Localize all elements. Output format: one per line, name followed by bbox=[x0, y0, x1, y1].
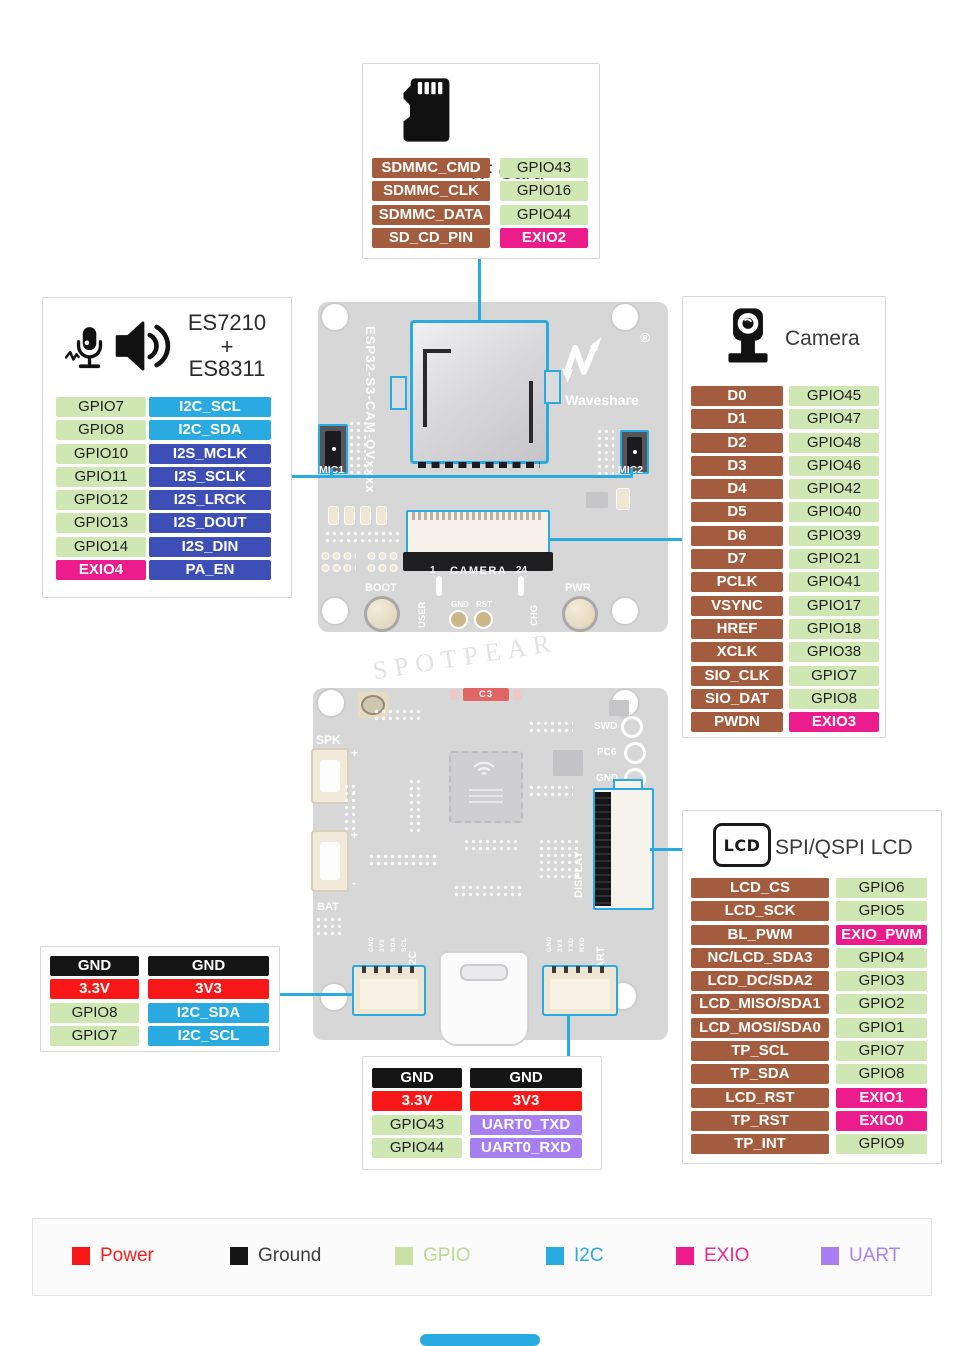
component bbox=[513, 689, 522, 700]
boot-button-label: BOOT bbox=[365, 583, 397, 594]
pin-cell-left: LCD_MISO/SDA1 bbox=[691, 994, 829, 1014]
legend: PowerGroundGPIOI2CEXIOUART bbox=[32, 1218, 932, 1296]
pin-cell-left: D2 bbox=[691, 433, 783, 453]
pin-cell-left: EXIO4 bbox=[56, 560, 146, 580]
pin-row: SDMMC_CMDGPIO43 bbox=[372, 158, 588, 178]
minus-mark: - bbox=[352, 876, 356, 890]
pin-cell-right: I2S_DOUT bbox=[149, 513, 271, 533]
lcd-panel: LCD SPI/QSPI LCD LCD_CSGPIO6LCD_SCKGPIO5… bbox=[682, 810, 942, 1164]
pin-cell-right: GPIO2 bbox=[836, 994, 927, 1014]
pin-cell-left: GPIO12 bbox=[56, 490, 146, 510]
pin-cell-right: I2S_MCLK bbox=[149, 444, 271, 464]
camera-panel: Camera D0GPIO45D1GPIO47D2GPIO48D3GPIO46D… bbox=[682, 296, 886, 738]
speaker-icon bbox=[113, 316, 173, 376]
pin-cell-right: UART0_RXD bbox=[470, 1138, 582, 1158]
pin-cell-right: I2S_DIN bbox=[149, 537, 271, 557]
legend-item-gpio: GPIO bbox=[395, 1245, 471, 1267]
display-callout-line bbox=[650, 848, 682, 851]
uart-pin-table: GNDGND3.3V3V3GPIO43UART0_TXDGPIO44UART0_… bbox=[372, 1068, 582, 1158]
tf-card-pin-table: SDMMC_CMDGPIO43SDMMC_CLKGPIO16SDMMC_DATA… bbox=[372, 158, 588, 248]
pin-cell-left: PWDN bbox=[691, 712, 783, 732]
pin-cell-right: GND bbox=[470, 1068, 582, 1088]
silkscreen-pattern bbox=[408, 778, 422, 833]
pin-row: D0GPIO45 bbox=[691, 386, 879, 406]
slot-spring bbox=[423, 349, 451, 353]
boot-button bbox=[364, 596, 400, 632]
silkscreen-pattern bbox=[596, 428, 614, 476]
pin-cell-left: TP_INT bbox=[691, 1134, 829, 1154]
watermark: SPOTPEAR bbox=[371, 628, 559, 687]
component bbox=[328, 506, 339, 525]
pin-cell-left: D3 bbox=[691, 456, 783, 476]
silkscreen-pattern bbox=[528, 720, 573, 735]
legend-label: UART bbox=[849, 1245, 900, 1267]
legend-swatch bbox=[676, 1247, 694, 1265]
pin-row: BL_PWMEXIO_PWM bbox=[691, 925, 927, 945]
lcd-pin-table: LCD_CSGPIO6LCD_SCKGPIO5BL_PWMEXIO_PWMNC/… bbox=[691, 878, 927, 1154]
pin-row: GPIO11I2S_SCLK bbox=[56, 467, 271, 487]
legend-swatch bbox=[72, 1247, 90, 1265]
pin-cell-left: D7 bbox=[691, 549, 783, 569]
silkscreen-pin-label: 3V3 bbox=[557, 926, 564, 952]
silkscreen-pin-label: GND bbox=[368, 926, 375, 952]
pin-row: SIO_CLKGPIO7 bbox=[691, 666, 879, 686]
silkscreen-pin-label: TXD bbox=[568, 926, 575, 952]
pin-row: SDMMC_DATAGPIO44 bbox=[372, 205, 588, 225]
pin-cell-left: TP_RST bbox=[691, 1111, 829, 1131]
display-ffc-connector bbox=[593, 788, 654, 910]
pin-cell-left: GPIO11 bbox=[56, 467, 146, 487]
legend-label: EXIO bbox=[704, 1245, 749, 1267]
pin-cell-left: GPIO43 bbox=[372, 1115, 462, 1135]
jumper-pads bbox=[320, 550, 356, 574]
pin-cell-right: UART0_TXD bbox=[470, 1115, 582, 1135]
pin-row: TP_SCLGPIO7 bbox=[691, 1041, 927, 1061]
usb-c-connector bbox=[439, 951, 529, 1046]
pin-cell-left: GND bbox=[372, 1068, 462, 1088]
pin-cell-left: TP_SDA bbox=[691, 1064, 829, 1084]
legend-label: Ground bbox=[258, 1245, 321, 1267]
pin-cell-left: D5 bbox=[691, 502, 783, 522]
pin-cell-right: GPIO9 bbox=[836, 1134, 927, 1154]
pin-cell-right: EXIO3 bbox=[789, 712, 879, 732]
camera-silk-label: CAMERA bbox=[450, 566, 507, 577]
waveshare-logo: ® Waveshare bbox=[554, 336, 650, 428]
pin-cell-left: 3.3V bbox=[372, 1091, 462, 1111]
i2c-connector bbox=[352, 965, 426, 1016]
rst-pad-label: RST bbox=[476, 601, 492, 609]
pin-cell-left: GND bbox=[50, 956, 139, 976]
swd-pad-label: SWD bbox=[594, 722, 617, 732]
pin-cell-right: GPIO17 bbox=[789, 596, 879, 616]
pin-row: GNDGND bbox=[372, 1068, 582, 1088]
pin-cell-right: GPIO48 bbox=[789, 433, 879, 453]
legend-item-uart: UART bbox=[821, 1245, 900, 1267]
pin-cell-right: EXIO0 bbox=[836, 1111, 927, 1131]
pwr-button-label: PWR bbox=[565, 583, 591, 594]
legend-swatch bbox=[546, 1247, 564, 1265]
pin-cell-right: GPIO43 bbox=[500, 158, 588, 178]
legend-item-exio: EXIO bbox=[676, 1245, 749, 1267]
component bbox=[553, 750, 583, 776]
pin-cell-right: GPIO40 bbox=[789, 502, 879, 522]
pin-cell-left: SDMMC_CMD bbox=[372, 158, 490, 178]
audio-title-line1: ES7210 bbox=[171, 310, 283, 336]
jumper-pads bbox=[366, 550, 400, 574]
pin-cell-left: LCD_RST bbox=[691, 1088, 829, 1108]
microphone-icon bbox=[65, 316, 113, 380]
component bbox=[360, 506, 371, 525]
pin-row: GNDGND bbox=[50, 956, 269, 976]
pin-cell-right: GPIO46 bbox=[789, 456, 879, 476]
pin-cell-left: D6 bbox=[691, 526, 783, 546]
pin-row: LCD_CSGPIO6 bbox=[691, 878, 927, 898]
pwr-button bbox=[562, 596, 598, 632]
pin-row: GPIO8I2C_SDA bbox=[50, 1003, 269, 1023]
lcd-icon: LCD bbox=[713, 823, 771, 867]
pin-cell-left: GPIO8 bbox=[56, 420, 146, 440]
pin-row: LCD_DC/SDA2GPIO3 bbox=[691, 971, 927, 991]
pin-cell-right: I2C_SCL bbox=[149, 397, 271, 417]
pin-row: LCD_RSTEXIO1 bbox=[691, 1088, 927, 1108]
tf-callout-line bbox=[478, 257, 481, 321]
user-button-label: USER bbox=[418, 586, 428, 628]
pin-cell-left: GPIO7 bbox=[50, 1026, 139, 1046]
uart-pin-labels: GND3V3TXDRXD bbox=[546, 926, 586, 952]
silkscreen-pin-label: 3V3 bbox=[379, 926, 386, 952]
legend-item-i2c: I2C bbox=[546, 1245, 604, 1267]
legend-swatch bbox=[395, 1247, 413, 1265]
pin-cell-left: XCLK bbox=[691, 642, 783, 662]
pin-row: D5GPIO40 bbox=[691, 502, 879, 522]
camera-ffc-connector bbox=[406, 510, 550, 570]
component bbox=[586, 492, 608, 508]
audio-callout-stub bbox=[630, 468, 633, 476]
pin-row: D1GPIO47 bbox=[691, 409, 879, 429]
i2c-header-panel: GNDGND3.3V3V3GPIO8I2C_SDAGPIO7I2C_SCL bbox=[40, 946, 280, 1052]
pin-cell-right: GPIO8 bbox=[836, 1064, 927, 1084]
silkscreen-pin-label: SDA bbox=[390, 926, 397, 952]
pc6-pad bbox=[624, 742, 646, 764]
connector-pins bbox=[412, 512, 544, 520]
i2c-callout-line bbox=[278, 993, 354, 996]
slot-pins bbox=[418, 462, 540, 468]
silkscreen-pin-label: GND bbox=[546, 926, 553, 952]
silkscreen-pattern bbox=[463, 838, 518, 854]
pin-cell-left: SDMMC_DATA bbox=[372, 205, 490, 225]
component bbox=[344, 506, 355, 525]
mounting-hole bbox=[321, 984, 347, 1010]
silkscreen-pattern bbox=[324, 530, 400, 544]
pin-cell-left: GPIO44 bbox=[372, 1138, 462, 1158]
pin-cell-left: GPIO14 bbox=[56, 537, 146, 557]
mounting-hole bbox=[318, 690, 344, 716]
pin-row: GPIO8I2C_SDA bbox=[56, 420, 271, 440]
lcd-title: SPI/QSPI LCD bbox=[775, 836, 913, 860]
plus-mark: + bbox=[351, 746, 358, 760]
mounting-hole bbox=[322, 598, 348, 624]
c3-component: C3 bbox=[463, 688, 509, 701]
pin-row: TP_RSTEXIO0 bbox=[691, 1111, 927, 1131]
pin-cell-right: GPIO3 bbox=[836, 971, 927, 991]
legend-label: Power bbox=[100, 1245, 154, 1267]
uart-connector bbox=[542, 965, 618, 1016]
pin-row: GPIO13I2S_DOUT bbox=[56, 513, 271, 533]
pin-row: D2GPIO48 bbox=[691, 433, 879, 453]
pin-row: GPIO7I2C_SCL bbox=[56, 397, 271, 417]
waveshare-mark-icon bbox=[554, 336, 616, 386]
camera-callout-line bbox=[549, 538, 682, 541]
board-photo-top: ® Waveshare ESP32-S3-CAM-OVxxxx MIC1 MIC… bbox=[318, 302, 668, 632]
swd-pad bbox=[621, 716, 643, 738]
gnd-pad bbox=[449, 610, 468, 629]
pin-cell-right: GPIO38 bbox=[789, 642, 879, 662]
brand-label: Waveshare bbox=[554, 392, 650, 408]
legend-label: GPIO bbox=[423, 1245, 471, 1267]
pin-cell-left: LCD_DC/SDA2 bbox=[691, 971, 829, 991]
pin-cell-right: GPIO47 bbox=[789, 409, 879, 429]
i2c-silk-label: I2C bbox=[408, 940, 419, 968]
tf-card-panel: TF Card SDMMC_CMDGPIO43SDMMC_CLKGPIO16SD… bbox=[362, 63, 600, 259]
pin-row: GPIO10I2S_MCLK bbox=[56, 444, 271, 464]
pin-cell-right: GPIO44 bbox=[500, 205, 588, 225]
pin-cell-left: GPIO8 bbox=[50, 1003, 139, 1023]
i2c-pin-table: GNDGND3.3V3V3GPIO8I2C_SDAGPIO7I2C_SCL bbox=[50, 956, 269, 1046]
pin-cell-right: GPIO41 bbox=[789, 572, 879, 592]
pin-cell-right: GPIO39 bbox=[789, 526, 879, 546]
chip-marking bbox=[469, 801, 503, 803]
pin-row: D3GPIO46 bbox=[691, 456, 879, 476]
slot-spring bbox=[423, 349, 427, 427]
pin-cell-right: EXIO_PWM bbox=[836, 925, 927, 945]
silkscreen-slot bbox=[518, 576, 524, 596]
pin-cell-left: SIO_DAT bbox=[691, 689, 783, 709]
pin-cell-right: GPIO16 bbox=[500, 181, 588, 201]
pin-row: GPIO44UART0_RXD bbox=[372, 1138, 582, 1158]
board-photo-bottom: C3 SPK + - + - SWD PC6 GND bbox=[313, 688, 668, 1040]
pin-cell-left: GPIO13 bbox=[56, 513, 146, 533]
legend-swatch bbox=[230, 1247, 248, 1265]
pin-cell-left: 3.3V bbox=[50, 979, 139, 999]
pin1-label: 1 bbox=[430, 566, 436, 576]
bat-label: BAT bbox=[317, 902, 339, 913]
pin-row: 3.3V3V3 bbox=[372, 1091, 582, 1111]
audio-pin-table: GPIO7I2C_SCLGPIO8I2C_SDAGPIO10I2S_MCLKGP… bbox=[56, 397, 271, 580]
audio-title-line3: ES8311 bbox=[171, 356, 283, 382]
pin-cell-left: GPIO10 bbox=[56, 444, 146, 464]
silkscreen-pin-label: RXD bbox=[579, 926, 586, 952]
pin-row: LCD_MISO/SDA1GPIO2 bbox=[691, 994, 927, 1014]
pin-cell-right: EXIO1 bbox=[836, 1088, 927, 1108]
pin-cell-left: LCD_CS bbox=[691, 878, 829, 898]
slot-spring bbox=[529, 381, 533, 443]
bottom-indicator-bar bbox=[420, 1334, 540, 1346]
pin-row: GPIO14I2S_DIN bbox=[56, 537, 271, 557]
pin-row: LCD_MOSI/SDA0GPIO1 bbox=[691, 1018, 927, 1038]
pin-cell-right: I2C_SDA bbox=[148, 1003, 269, 1023]
pin-row: TP_SDAGPIO8 bbox=[691, 1064, 927, 1084]
spk-label: SPK bbox=[316, 734, 341, 746]
rst-pad bbox=[474, 610, 493, 629]
gnd-pad-label: GND bbox=[451, 601, 469, 609]
pin24-label: 24 bbox=[516, 566, 527, 576]
pc6-pad-label: PC6 bbox=[597, 748, 616, 758]
chip-marking bbox=[469, 795, 503, 797]
legend-label: I2C bbox=[574, 1245, 604, 1267]
component bbox=[376, 506, 387, 525]
chip-marking bbox=[469, 789, 503, 791]
pin-row: HREFGPIO18 bbox=[691, 619, 879, 639]
component bbox=[450, 689, 459, 700]
registered-mark: ® bbox=[640, 330, 650, 345]
pin-row: PWDNEXIO3 bbox=[691, 712, 879, 732]
pin-row: SDMMC_CLKGPIO16 bbox=[372, 181, 588, 201]
mounting-hole bbox=[612, 304, 638, 330]
chg-led-label: CHG bbox=[530, 586, 540, 626]
silkscreen-pattern bbox=[538, 838, 578, 878]
audio-callout-stub bbox=[330, 468, 333, 476]
pin-row: D6GPIO39 bbox=[691, 526, 879, 546]
pin-row: SD_CD_PINEXIO2 bbox=[372, 228, 588, 248]
pin-row: EXIO4PA_EN bbox=[56, 560, 271, 580]
pin-cell-right: GPIO1 bbox=[836, 1018, 927, 1038]
pin-cell-right: EXIO2 bbox=[500, 228, 588, 248]
pin-cell-left: BL_PWM bbox=[691, 925, 829, 945]
pin-cell-right: GPIO6 bbox=[836, 878, 927, 898]
legend-item-ground: Ground bbox=[230, 1245, 321, 1267]
camera-title: Camera bbox=[785, 327, 860, 351]
uart-callout-line bbox=[567, 1014, 570, 1057]
pin-cell-right: GND bbox=[148, 956, 269, 976]
pin-row: TP_INTGPIO9 bbox=[691, 1134, 927, 1154]
pin-row: NC/LCD_SDA3GPIO4 bbox=[691, 948, 927, 968]
pin-cell-left: LCD_SCK bbox=[691, 901, 829, 921]
silkscreen-pin-label: SCL bbox=[401, 926, 408, 952]
silkscreen-pattern bbox=[368, 853, 438, 867]
pin-cell-right: GPIO8 bbox=[789, 689, 879, 709]
pin-cell-left: SIO_CLK bbox=[691, 666, 783, 686]
legend-swatch bbox=[821, 1247, 839, 1265]
pin-cell-left: D1 bbox=[691, 409, 783, 429]
pin-cell-right: I2S_SCLK bbox=[149, 467, 271, 487]
pin-row: PCLKGPIO41 bbox=[691, 572, 879, 592]
uart-header-panel: GNDGND3.3V3V3GPIO43UART0_TXDGPIO44UART0_… bbox=[362, 1056, 602, 1170]
pin-cell-left: VSYNC bbox=[691, 596, 783, 616]
audio-callout-line bbox=[290, 475, 633, 478]
pin-cell-right: GPIO21 bbox=[789, 549, 879, 569]
pin-cell-right: GPIO4 bbox=[836, 948, 927, 968]
pin-cell-right: 3V3 bbox=[148, 979, 269, 999]
pin-row: SIO_DATGPIO8 bbox=[691, 689, 879, 709]
pin-cell-right: GPIO7 bbox=[789, 666, 879, 686]
pin-row: XCLKGPIO38 bbox=[691, 642, 879, 662]
pin-cell-left: D0 bbox=[691, 386, 783, 406]
slot-tab bbox=[390, 376, 407, 410]
mounting-hole bbox=[612, 598, 638, 624]
silkscreen-slot bbox=[436, 576, 442, 596]
pin-cell-right: I2C_SDA bbox=[149, 420, 271, 440]
pin-row: VSYNCGPIO17 bbox=[691, 596, 879, 616]
pin-row: D7GPIO21 bbox=[691, 549, 879, 569]
pin-cell-left: SD_CD_PIN bbox=[372, 228, 490, 248]
silkscreen-pattern bbox=[315, 916, 345, 938]
pin-cell-left: TP_SCL bbox=[691, 1041, 829, 1061]
pin-cell-right: GPIO7 bbox=[836, 1041, 927, 1061]
pin-cell-right: I2C_SCL bbox=[148, 1026, 269, 1046]
esp32-module bbox=[449, 751, 523, 823]
pin-cell-right: GPIO42 bbox=[789, 479, 879, 499]
audio-codec-panel: ES7210 + ES8311 GPIO7I2C_SCLGPIO8I2C_SDA… bbox=[42, 297, 292, 598]
pin-cell-right: 3V3 bbox=[470, 1091, 582, 1111]
legend-item-power: Power bbox=[72, 1245, 154, 1267]
tf-card-icon bbox=[399, 77, 451, 143]
pin-cell-left: GPIO7 bbox=[56, 397, 146, 417]
pin-cell-right: GPIO18 bbox=[789, 619, 879, 639]
silkscreen-pattern bbox=[528, 784, 573, 796]
pin-row: GPIO12I2S_LRCK bbox=[56, 490, 271, 510]
pin-cell-left: D4 bbox=[691, 479, 783, 499]
camera-icon bbox=[725, 307, 771, 365]
component bbox=[616, 488, 630, 510]
pin-cell-right: PA_EN bbox=[149, 560, 271, 580]
pin-cell-right: GPIO5 bbox=[836, 901, 927, 921]
pin-cell-left: PCLK bbox=[691, 572, 783, 592]
speaker-connector-2 bbox=[311, 830, 349, 892]
pin-row: D4GPIO42 bbox=[691, 479, 879, 499]
pin-row: 3.3V3V3 bbox=[50, 979, 269, 999]
pin-cell-left: HREF bbox=[691, 619, 783, 639]
pin-row: GPIO7I2C_SCL bbox=[50, 1026, 269, 1046]
silkscreen-pattern bbox=[343, 783, 359, 833]
silkscreen-pattern bbox=[348, 420, 366, 476]
pin-cell-left: NC/LCD_SDA3 bbox=[691, 948, 829, 968]
pin-cell-left: LCD_MOSI/SDA0 bbox=[691, 1018, 829, 1038]
wifi-icon bbox=[471, 759, 497, 779]
pin-row: LCD_SCKGPIO5 bbox=[691, 901, 927, 921]
pin-cell-right: GPIO45 bbox=[789, 386, 879, 406]
component bbox=[609, 700, 629, 716]
tf-card-slot bbox=[410, 320, 549, 464]
silkscreen-pattern bbox=[453, 884, 523, 900]
display-silk-label: DISPLAY bbox=[574, 798, 585, 898]
mounting-hole bbox=[322, 304, 348, 330]
pin-cell-left: SDMMC_CLK bbox=[372, 181, 490, 201]
i2c-pin-labels: GND3V3SDASCL bbox=[368, 926, 408, 952]
camera-pin-table: D0GPIO45D1GPIO47D2GPIO48D3GPIO46D4GPIO42… bbox=[691, 386, 879, 732]
silkscreen-pattern bbox=[373, 708, 423, 722]
pin-cell-right: I2S_LRCK bbox=[149, 490, 271, 510]
pinout-diagram: ® Waveshare ESP32-S3-CAM-OVxxxx MIC1 MIC… bbox=[0, 0, 960, 1346]
pin-row: GPIO43UART0_TXD bbox=[372, 1115, 582, 1135]
